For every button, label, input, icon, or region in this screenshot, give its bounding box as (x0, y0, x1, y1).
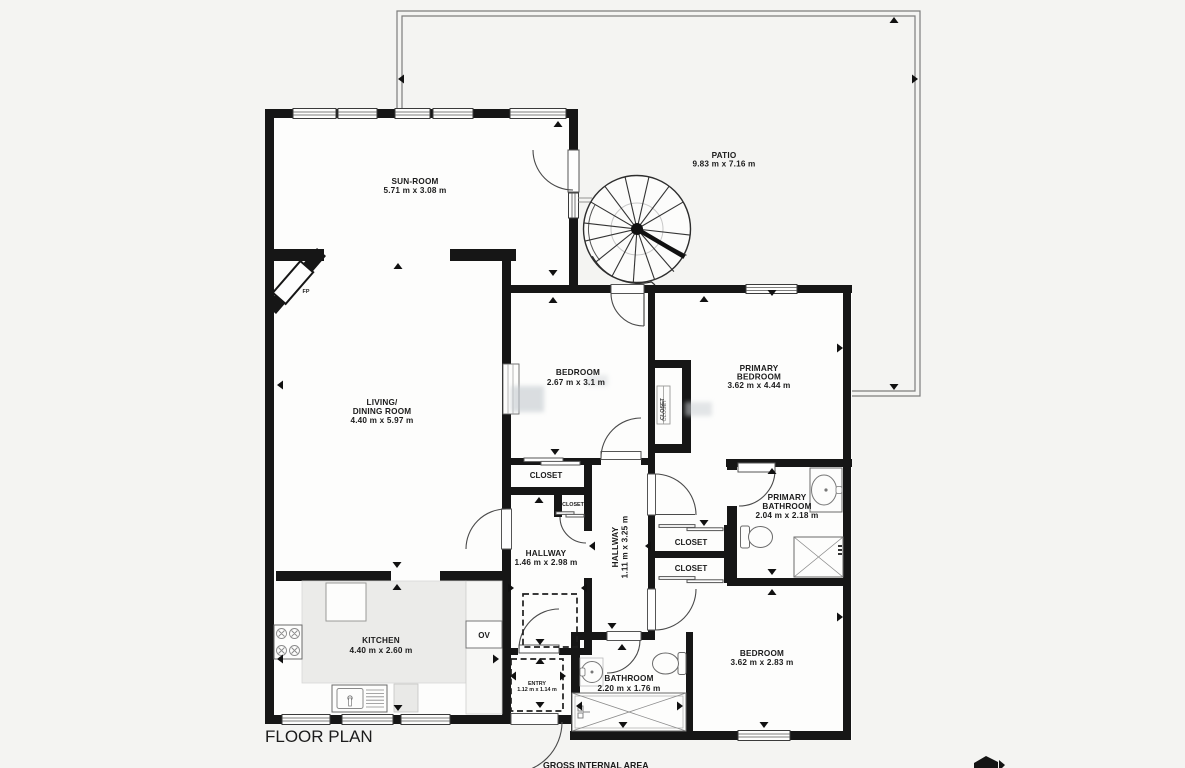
svg-text:DINING ROOM: DINING ROOM (353, 407, 412, 416)
svg-text:CLOSET: CLOSET (662, 399, 668, 422)
svg-text:FLOOR PLAN: FLOOR PLAN (265, 727, 373, 746)
svg-text:3.62 m x 4.44 m: 3.62 m x 4.44 m (727, 381, 790, 390)
svg-text:CLOSET: CLOSET (562, 502, 585, 508)
svg-text:9.83 m x 7.16 m: 9.83 m x 7.16 m (692, 160, 755, 169)
svg-text:BATHROOM: BATHROOM (604, 674, 653, 683)
svg-text:5.71 m x 3.08 m: 5.71 m x 3.08 m (383, 186, 446, 195)
svg-text:1.12 m x 1.14 m: 1.12 m x 1.14 m (517, 687, 557, 693)
svg-text:BEDROOM: BEDROOM (740, 649, 784, 658)
svg-text:HALLWAY: HALLWAY (611, 526, 620, 567)
svg-text:LIVING/: LIVING/ (367, 398, 398, 407)
svg-text:CLOSET: CLOSET (675, 538, 708, 547)
svg-text:3.62 m x 2.83 m: 3.62 m x 2.83 m (730, 658, 793, 667)
svg-text:2.04 m x 2.18 m: 2.04 m x 2.18 m (755, 511, 818, 520)
svg-text:FP: FP (303, 289, 310, 295)
svg-text:1.11 m x 3.25 m: 1.11 m x 3.25 m (621, 516, 630, 579)
svg-text:4.40 m x 2.60 m: 4.40 m x 2.60 m (349, 646, 412, 655)
svg-text:4.40 m x 5.97 m: 4.40 m x 5.97 m (350, 416, 413, 425)
svg-text:BEDROOM: BEDROOM (556, 368, 600, 377)
svg-text:KITCHEN: KITCHEN (362, 636, 400, 645)
svg-text:OV: OV (478, 631, 490, 640)
svg-text:2.20 m x 1.76 m: 2.20 m x 1.76 m (597, 684, 660, 693)
svg-text:CLOSET: CLOSET (675, 564, 708, 573)
svg-text:BATHROOM: BATHROOM (762, 502, 811, 511)
svg-text:GROSS INTERNAL AREA: GROSS INTERNAL AREA (543, 761, 649, 768)
svg-text:HALLWAY: HALLWAY (526, 549, 567, 558)
svg-text:1.46 m x 2.98 m: 1.46 m x 2.98 m (514, 558, 577, 567)
svg-text:PRIMARY: PRIMARY (768, 493, 807, 502)
svg-text:SUN-ROOM: SUN-ROOM (391, 177, 438, 186)
svg-text:2.67 m x 3.1 m: 2.67 m x 3.1 m (547, 378, 605, 387)
svg-text:CLOSET: CLOSET (530, 471, 563, 480)
